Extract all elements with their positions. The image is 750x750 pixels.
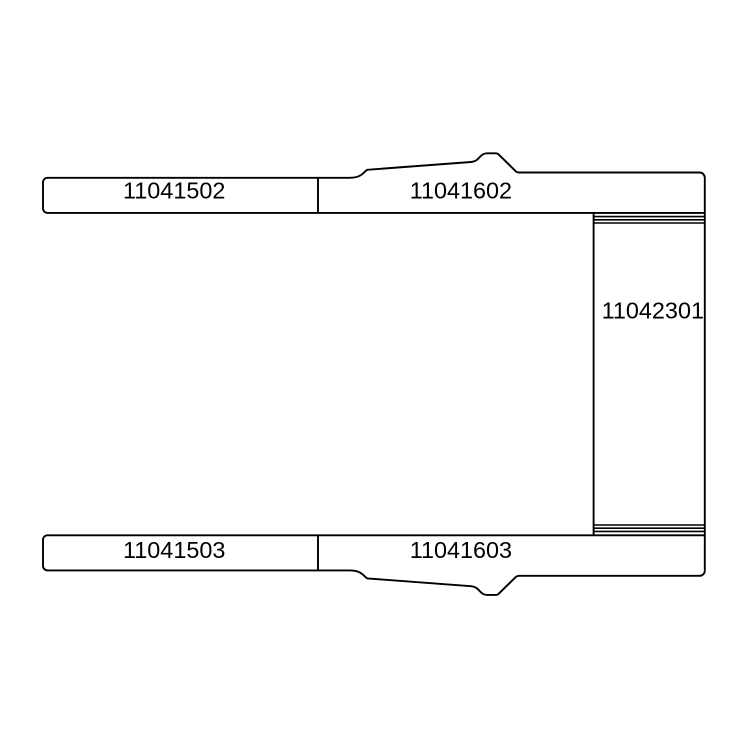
svg-text:11042301: 11042301 (602, 298, 704, 324)
svg-text:11041503: 11041503 (123, 537, 225, 563)
svg-text:11041502: 11041502 (123, 178, 225, 204)
svg-text:11041602: 11041602 (410, 178, 512, 204)
svg-text:11041603: 11041603 (410, 537, 512, 563)
